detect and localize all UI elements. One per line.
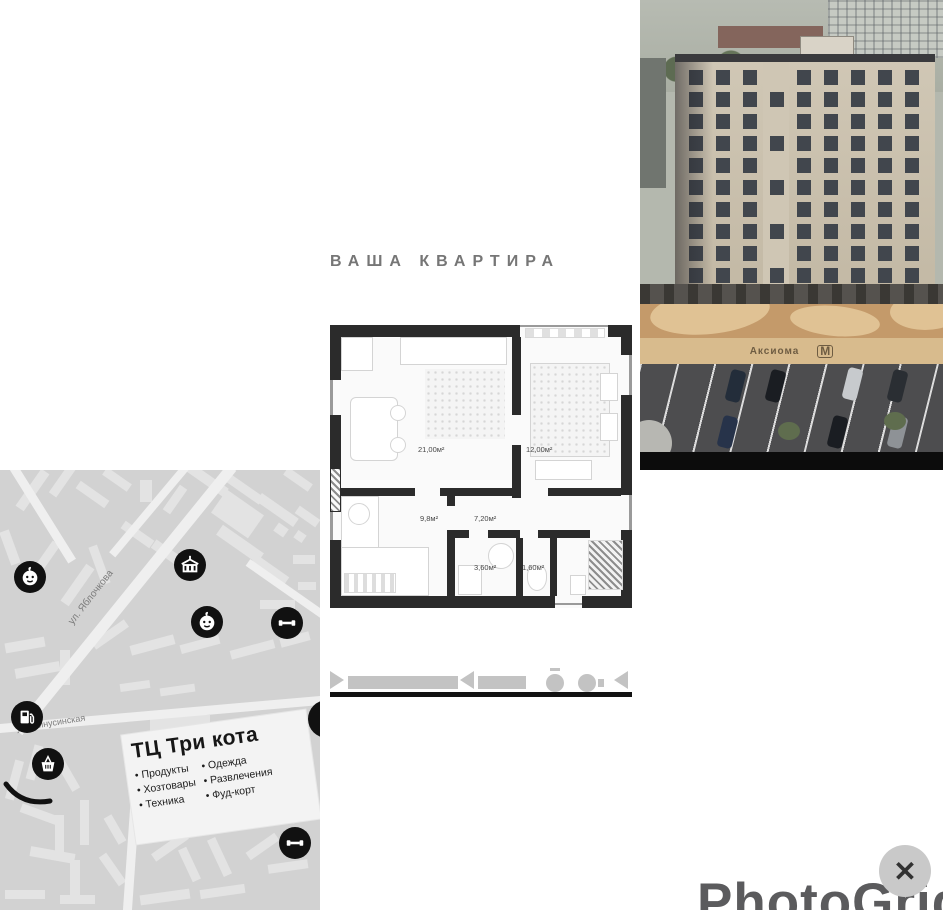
close-button[interactable]: ✕ — [879, 845, 931, 897]
school-icon — [174, 549, 206, 581]
gym-icon — [279, 827, 311, 859]
brand-text: Аксиома — [750, 346, 800, 357]
brand-logo: М — [817, 345, 833, 358]
building-photo: Аксиома М — [640, 0, 943, 470]
mall-items-left: Продукты Хозтовары Техника — [134, 761, 199, 814]
mall-items-right: Одежда Развлечения Фуд-корт — [201, 750, 276, 804]
room-area-bathroom: 3,60м² — [474, 563, 496, 572]
route-line — [0, 770, 120, 830]
stylobate-fence: Аксиома М — [640, 338, 943, 364]
kindergarten-icon — [191, 606, 223, 638]
building-facade — [675, 62, 935, 288]
parking-lot — [640, 364, 943, 454]
gym-icon — [271, 607, 303, 639]
room-area-wc: 1,60м² — [522, 563, 544, 572]
kindergarten-icon — [14, 561, 46, 593]
plan-title: ВАША КВАРТИРА — [330, 253, 560, 271]
fuel-station-icon — [11, 701, 43, 733]
room-area-bedroom: 12,00м² — [526, 445, 552, 454]
room-area-kitchen: 9,8м² — [420, 514, 438, 523]
ground-floor — [640, 284, 943, 306]
photo-bottom-bar — [640, 452, 943, 470]
neighbor-building — [640, 58, 666, 188]
plan-strip — [330, 668, 632, 698]
road — [10, 470, 76, 564]
room-area-hall: 7,20м² — [474, 514, 496, 523]
plan-baseline — [330, 692, 632, 697]
floor-plan: 21,00м² 12,00м² 9,8м² 7,20м² 3,60м² 1,60… — [330, 325, 632, 608]
road — [14, 470, 237, 735]
map-panel: ул. Яблочкова ул. Минусинская — [0, 470, 320, 910]
room-area-living: 21,00м² — [418, 445, 444, 454]
photo-grid-collage: ул. Яблочкова ул. Минусинская — [0, 0, 943, 910]
